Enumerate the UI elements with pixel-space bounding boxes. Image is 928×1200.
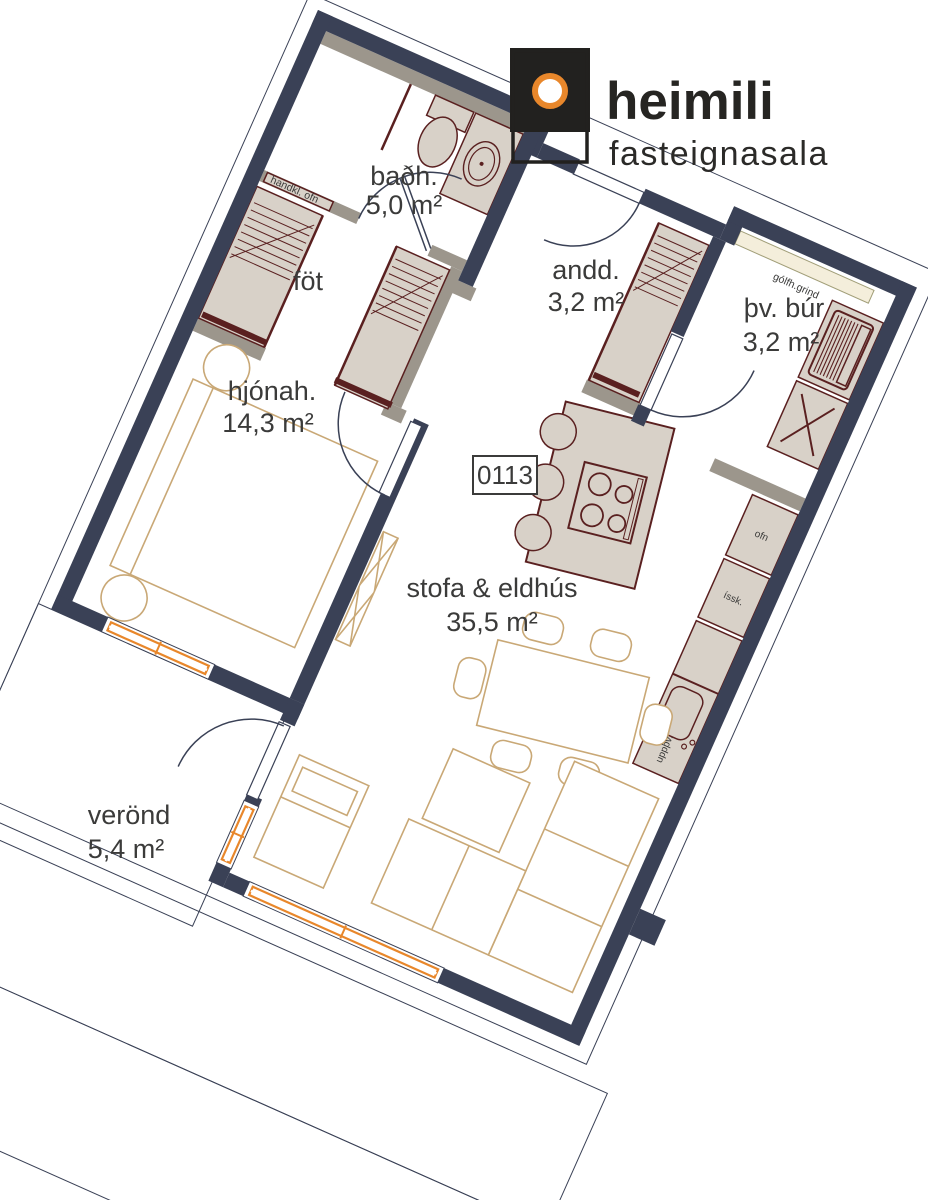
unit-number: 0113 xyxy=(473,456,537,494)
floor-plan-page: handkl. ofn gólfh.grind ofn íssk. uppþv.… xyxy=(0,0,928,1200)
room-label-bathroom: baðh. xyxy=(370,161,438,191)
room-area-laundry: 3,2 m² xyxy=(743,327,820,357)
room-label-entrance: andd. xyxy=(552,255,620,285)
door-front xyxy=(544,163,644,269)
lounge-chair xyxy=(254,755,369,888)
dining-chair xyxy=(588,627,634,664)
room-area-bedroom: 14,3 m² xyxy=(222,408,314,438)
room-area-terrace: 5,4 m² xyxy=(88,834,165,864)
logo-title: heimili xyxy=(606,72,774,131)
window-terrace-wall xyxy=(217,800,259,869)
neighbor-terrace-band-2 xyxy=(0,905,546,1200)
floor-plan-svg: handkl. ofn gólfh.grind ofn íssk. uppþv.… xyxy=(0,0,928,1200)
room-label-laundry: þv. búr xyxy=(744,293,825,323)
room-label-bedroom: hjónah. xyxy=(228,376,317,406)
unit-number-text: 0113 xyxy=(477,460,533,490)
terrace-outline xyxy=(0,604,287,927)
logo-subtitle: fasteignasala xyxy=(609,135,829,173)
room-area-bathroom: 5,0 m² xyxy=(366,190,443,220)
window-bedroom xyxy=(101,617,214,679)
room-area-entrance: 3,2 m² xyxy=(548,287,625,317)
shower-partition xyxy=(382,84,411,150)
room-label-living: stofa & eldhús xyxy=(406,573,577,603)
room-area-living: 35,5 m² xyxy=(446,607,538,637)
room-label-closet: föt xyxy=(293,266,324,296)
logo-dot-icon xyxy=(535,76,565,106)
room-label-terrace: verönd xyxy=(88,800,171,830)
dining-chair xyxy=(451,655,488,701)
